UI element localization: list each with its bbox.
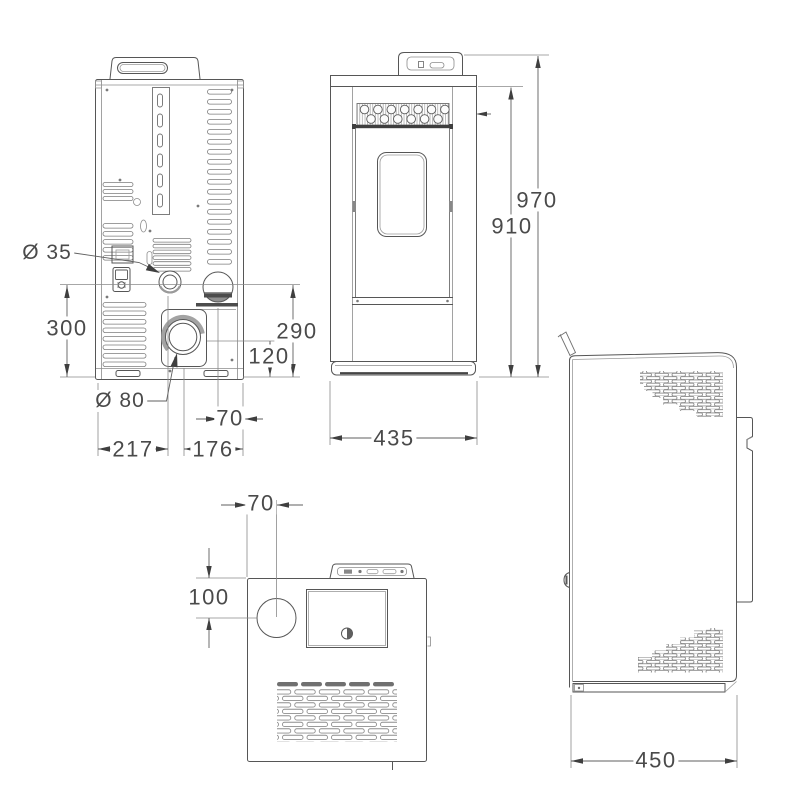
dim-outlet-diameter: Ø 80 xyxy=(93,390,147,412)
dim-width-217: 217 xyxy=(110,437,155,460)
dim-offset-100-top: 100 xyxy=(186,585,231,608)
dim-height-290: 290 xyxy=(274,319,319,342)
dim-width-70-rear: 70 xyxy=(214,406,245,429)
dim-width-176: 176 xyxy=(190,437,235,460)
stove-technical-drawing: Ø 35 300 Ø 80 217 176 70 290 120 435 970… xyxy=(0,0,800,800)
dim-height-300: 300 xyxy=(44,316,89,339)
dim-height-910: 910 xyxy=(489,214,534,237)
top-vent-grille xyxy=(277,682,397,742)
dim-width-435: 435 xyxy=(371,426,416,449)
dim-height-120: 120 xyxy=(246,344,291,367)
dim-flue-diameter: Ø 35 xyxy=(20,242,74,264)
dim-offset-70-top: 70 xyxy=(245,491,276,514)
dim-height-970: 970 xyxy=(514,188,559,211)
dim-depth-450: 450 xyxy=(633,748,678,771)
front-grille xyxy=(352,104,453,130)
